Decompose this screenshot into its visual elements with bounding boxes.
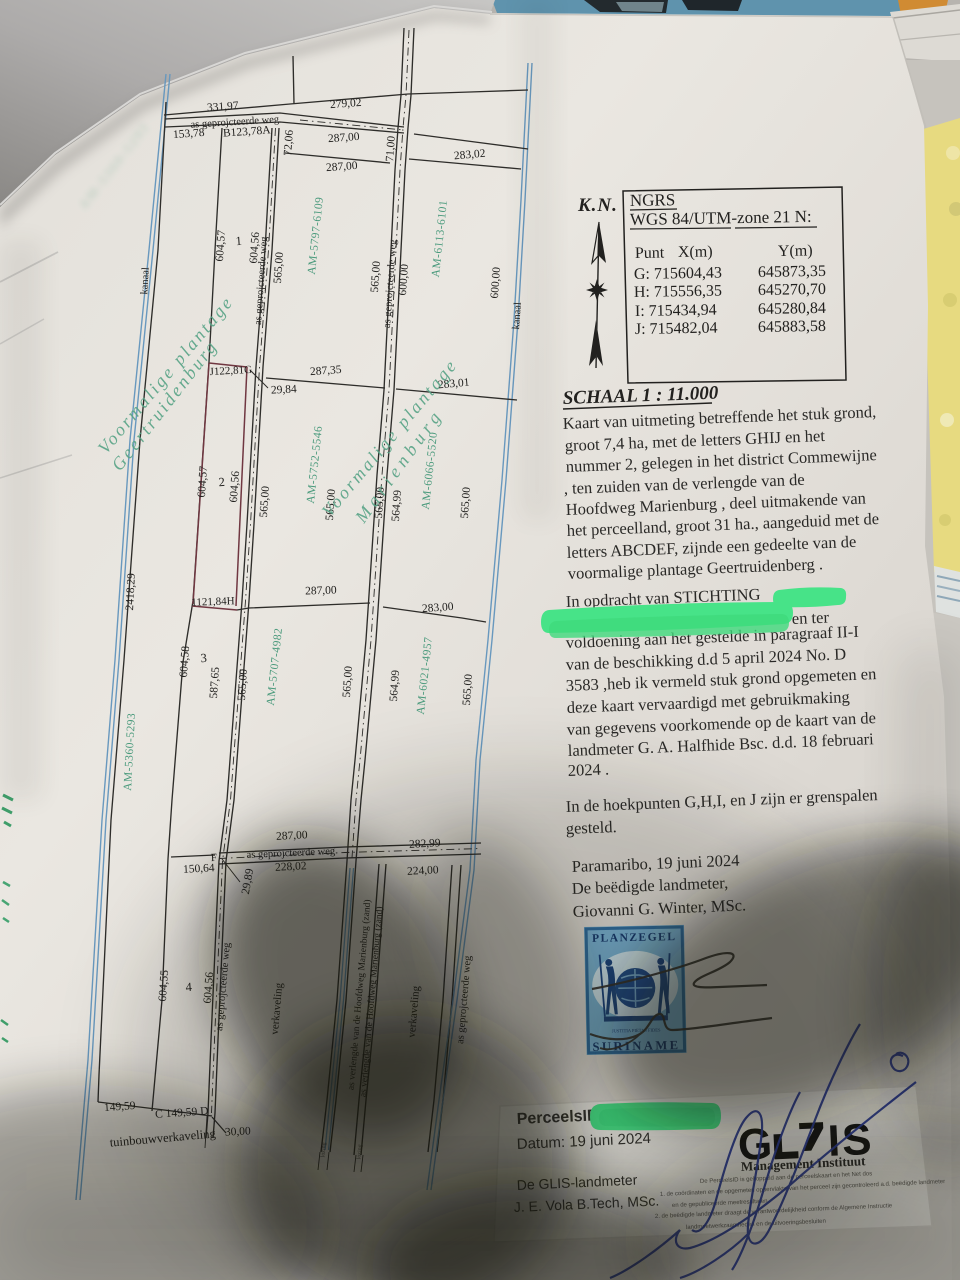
- svg-text:287,00: 287,00: [328, 131, 361, 145]
- svg-text:H: 715556,35: H: 715556,35: [634, 282, 722, 301]
- svg-text:600,00: 600,00: [489, 266, 503, 299]
- svg-text:287,00: 287,00: [326, 160, 359, 174]
- svg-text:565,00: 565,00: [461, 673, 475, 706]
- svg-text:I: 715434,94: I: 715434,94: [635, 302, 717, 320]
- svg-text:2418,29: 2418,29: [124, 573, 138, 611]
- svg-text:1121,84H: 1121,84H: [191, 595, 235, 609]
- svg-text:565,00: 565,00: [272, 251, 286, 284]
- svg-text:565,00: 565,00: [258, 485, 272, 518]
- svg-text:NGRS: NGRS: [630, 190, 676, 210]
- svg-text:604,57: 604,57: [214, 229, 228, 262]
- svg-text:Punt: Punt: [635, 244, 665, 262]
- svg-text:564,99: 564,99: [390, 489, 404, 522]
- svg-text:564,99: 564,99: [388, 669, 402, 702]
- svg-text:WGS 84/UTM-zone 21 N:: WGS 84/UTM-zone 21 N:: [630, 207, 812, 229]
- svg-text:645883,58: 645883,58: [758, 318, 826, 336]
- svg-text:587,65: 587,65: [208, 666, 222, 699]
- svg-text:565,00: 565,00: [459, 486, 473, 519]
- svg-text:565,00: 565,00: [369, 260, 383, 293]
- svg-text:604,57: 604,57: [196, 465, 210, 498]
- svg-text:71,00: 71,00: [384, 135, 398, 162]
- svg-text:565,00: 565,00: [341, 665, 355, 698]
- svg-text:kanaal: kanaal: [139, 267, 151, 295]
- svg-text:3: 3: [200, 651, 207, 665]
- svg-text:150,64: 150,64: [183, 862, 215, 876]
- svg-text:2: 2: [218, 475, 225, 489]
- svg-text:287,35: 287,35: [310, 364, 343, 378]
- svg-text:645270,70: 645270,70: [758, 281, 826, 299]
- svg-text:331,97: 331,97: [207, 100, 240, 114]
- svg-text:287,00: 287,00: [305, 584, 337, 597]
- svg-text:X(m): X(m): [678, 243, 713, 261]
- svg-text:153,78: 153,78: [173, 127, 206, 141]
- svg-text:565,00: 565,00: [236, 668, 250, 701]
- svg-text:29,84: 29,84: [271, 383, 298, 396]
- svg-text:1: 1: [235, 234, 242, 248]
- svg-text:600,00: 600,00: [397, 263, 411, 296]
- svg-text:645280,84: 645280,84: [758, 300, 826, 318]
- svg-text:K.N.: K.N.: [577, 195, 618, 216]
- svg-text:72,06: 72,06: [282, 129, 296, 156]
- svg-text:G: 715604,43: G: 715604,43: [634, 264, 722, 283]
- svg-text:283,00: 283,00: [422, 601, 455, 615]
- svg-text:Y(m): Y(m): [778, 242, 813, 260]
- svg-text:279,02: 279,02: [330, 97, 363, 111]
- svg-text:J122,81G: J122,81G: [209, 364, 252, 378]
- svg-text:J: 715482,04: J: 715482,04: [635, 320, 718, 338]
- svg-text:604,56: 604,56: [228, 470, 242, 503]
- svg-text:645873,35: 645873,35: [758, 263, 826, 281]
- svg-text:604,58: 604,58: [178, 645, 192, 678]
